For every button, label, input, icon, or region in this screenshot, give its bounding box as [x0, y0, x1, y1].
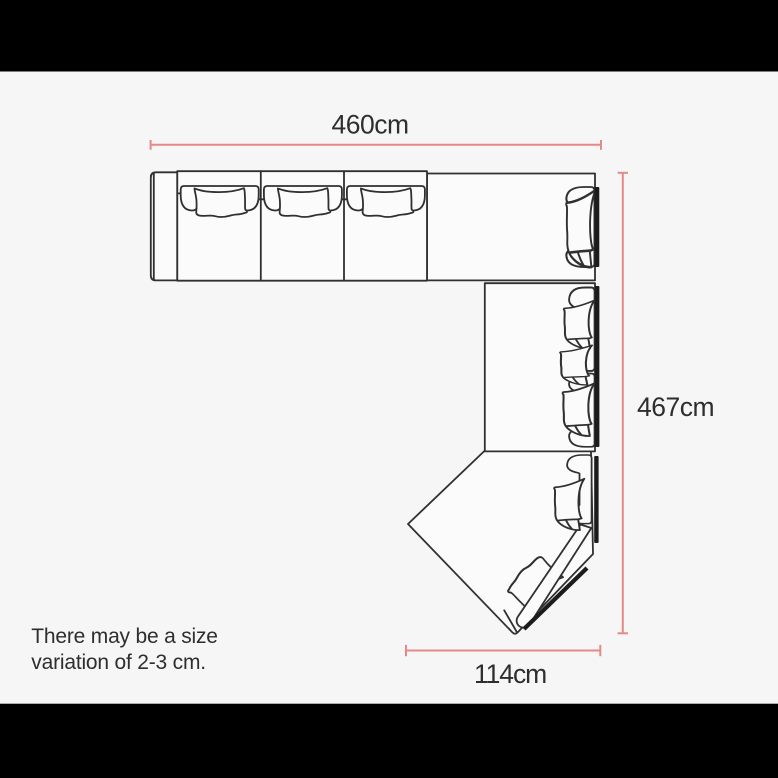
svg-text:460cm: 460cm	[332, 110, 409, 140]
svg-text:114cm: 114cm	[474, 659, 546, 689]
svg-text:variation of 2-3 cm.: variation of 2-3 cm.	[31, 651, 206, 674]
svg-text:467cm: 467cm	[637, 392, 714, 422]
svg-text:There may be a size: There may be a size	[31, 625, 217, 648]
